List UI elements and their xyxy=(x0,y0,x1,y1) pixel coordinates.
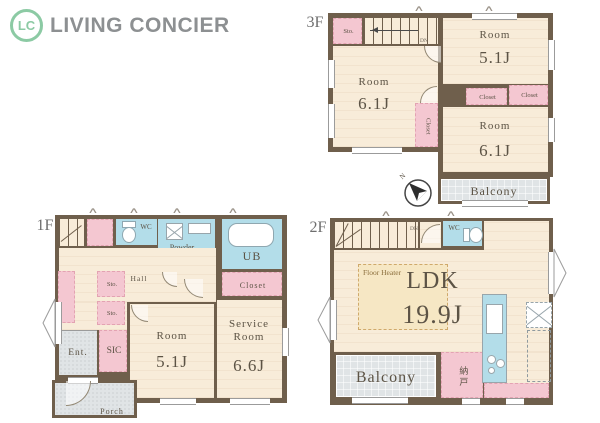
bathtub-icon xyxy=(228,223,274,247)
f1-room-name: Room xyxy=(142,330,202,343)
f2-ldk-name: LDK xyxy=(395,268,470,296)
f2-ldk-floor-top xyxy=(484,221,549,250)
f1-sto-b-label: Sto. xyxy=(98,310,126,317)
floor-label-2f: 2F xyxy=(303,219,333,237)
window xyxy=(462,398,480,405)
f1-sto-a-label: Sto. xyxy=(98,281,126,288)
toilet-icon xyxy=(122,227,136,243)
f1-unit-bath: UB xyxy=(222,219,282,269)
window xyxy=(548,118,555,142)
window xyxy=(506,398,524,405)
f1-staircase xyxy=(59,219,84,246)
f1-storage-a: Sto. xyxy=(97,271,125,297)
f3-room-c-size: 6.1J xyxy=(463,141,527,161)
f3-storage-room: Sto. xyxy=(333,18,362,44)
stove-burner-icon xyxy=(488,367,495,374)
vent-icon: ∧ xyxy=(87,206,98,215)
f1-closet-label: Closet xyxy=(223,281,283,290)
toilet-icon xyxy=(469,227,483,243)
f3-closet-b: Closet xyxy=(509,85,548,105)
f3-closet-a: Closet xyxy=(466,88,507,105)
f3-closet-c-label: Closet xyxy=(424,108,431,144)
vent-icon: ∧ xyxy=(380,209,391,218)
vent-icon: ∧ xyxy=(445,209,456,218)
brand-name: LIVING CONCIER xyxy=(50,14,230,38)
stair-winder-line xyxy=(61,225,82,242)
f3-room-a-name: Room xyxy=(344,76,404,89)
f2-counter-storage xyxy=(484,383,549,398)
stove-burner-icon xyxy=(487,355,496,364)
f2-wc-label: WC xyxy=(445,224,463,232)
stair-down-arrow-icon xyxy=(370,30,418,31)
vent-icon: ∧ xyxy=(483,4,494,13)
logo-lc-icon: LC xyxy=(10,9,43,42)
f1-wc-label: WC xyxy=(136,223,156,231)
f1-service-size: 6.6J xyxy=(214,356,284,376)
f3-closet-b-label: Closet xyxy=(510,92,549,99)
f1-wc-room: WC xyxy=(116,219,157,245)
f2-kitchen-counter xyxy=(482,294,507,383)
f2-nando-storage: 納戸 xyxy=(441,352,483,398)
vent-icon: ∧ xyxy=(171,206,182,215)
window xyxy=(55,302,62,344)
logo-mark: LC xyxy=(18,18,35,33)
f1-ent-label: Ent. xyxy=(59,348,97,359)
window xyxy=(330,300,337,340)
f2-ldk-size: 19.9J xyxy=(385,300,480,330)
f2-balcony-label: Balcony xyxy=(336,369,436,387)
bay-window-icon xyxy=(317,296,331,344)
f2-nando-label: 納戸 xyxy=(458,361,468,393)
window xyxy=(328,104,335,138)
f1-closet: Closet xyxy=(222,272,282,296)
floor-plan-sheet: LC LIVING CONCIER 3F Sto. DN Room 6.1J C… xyxy=(0,0,600,423)
f2-wc-room: WC xyxy=(443,221,482,246)
f1-sic-label: SIC xyxy=(100,346,128,357)
f3-room-b-size: 5.1J xyxy=(463,48,527,68)
f1-shoe-in-closet: SIC xyxy=(99,330,127,372)
f3-room-6-1-right xyxy=(443,107,548,172)
f1-porch: Porch xyxy=(52,380,137,418)
f3-dn-label: DN xyxy=(414,38,434,44)
vent-icon: ∧ xyxy=(128,206,139,215)
f3-room-b-name: Room xyxy=(465,29,525,42)
cupboard-space xyxy=(527,330,551,382)
window xyxy=(230,398,270,405)
f1-room-size: 5.1J xyxy=(138,352,206,372)
f3-storage-label: Sto. xyxy=(334,28,363,35)
f1-entrance: Ent. xyxy=(59,330,97,375)
sink-icon xyxy=(166,223,183,240)
f3-room-c-name: Room xyxy=(465,120,525,133)
f1-porch-label: Porch xyxy=(93,407,131,416)
window xyxy=(160,398,196,405)
f3-balcony-label: Balcony xyxy=(441,185,547,199)
f1-storage-b: Sto. xyxy=(97,301,125,325)
floor-label-3f: 3F xyxy=(300,14,330,32)
f1-hall-label: Hall xyxy=(124,275,154,284)
vent-icon: ∧ xyxy=(227,206,238,215)
f1-ub-label: UB xyxy=(236,250,268,264)
f3-closet-a-label: Closet xyxy=(467,94,508,101)
bay-window-icon xyxy=(42,298,56,348)
f1-upper-closet xyxy=(87,219,113,246)
window xyxy=(328,60,335,88)
f1-service-name: Service Room xyxy=(212,318,286,343)
balcony-rail-opening xyxy=(462,200,528,207)
balcony-rail-opening xyxy=(352,397,408,404)
bay-window-icon xyxy=(553,248,567,298)
compass-icon xyxy=(402,176,434,208)
window xyxy=(472,13,517,20)
stair-winder-line xyxy=(336,223,349,246)
counter-icon xyxy=(188,223,211,234)
refrigerator-space-icon xyxy=(526,302,552,328)
f2-balcony: Balcony xyxy=(333,352,439,400)
f1-service-room xyxy=(217,300,282,398)
stove-burner-icon xyxy=(496,359,505,368)
window xyxy=(352,147,402,154)
f3-room-a-size: 6.1J xyxy=(342,94,406,114)
window xyxy=(548,40,555,70)
kitchen-sink-icon xyxy=(486,304,503,334)
vent-icon: ∧ xyxy=(413,4,424,13)
window xyxy=(282,328,289,356)
f3-closet-vertical: Closet xyxy=(415,103,438,147)
